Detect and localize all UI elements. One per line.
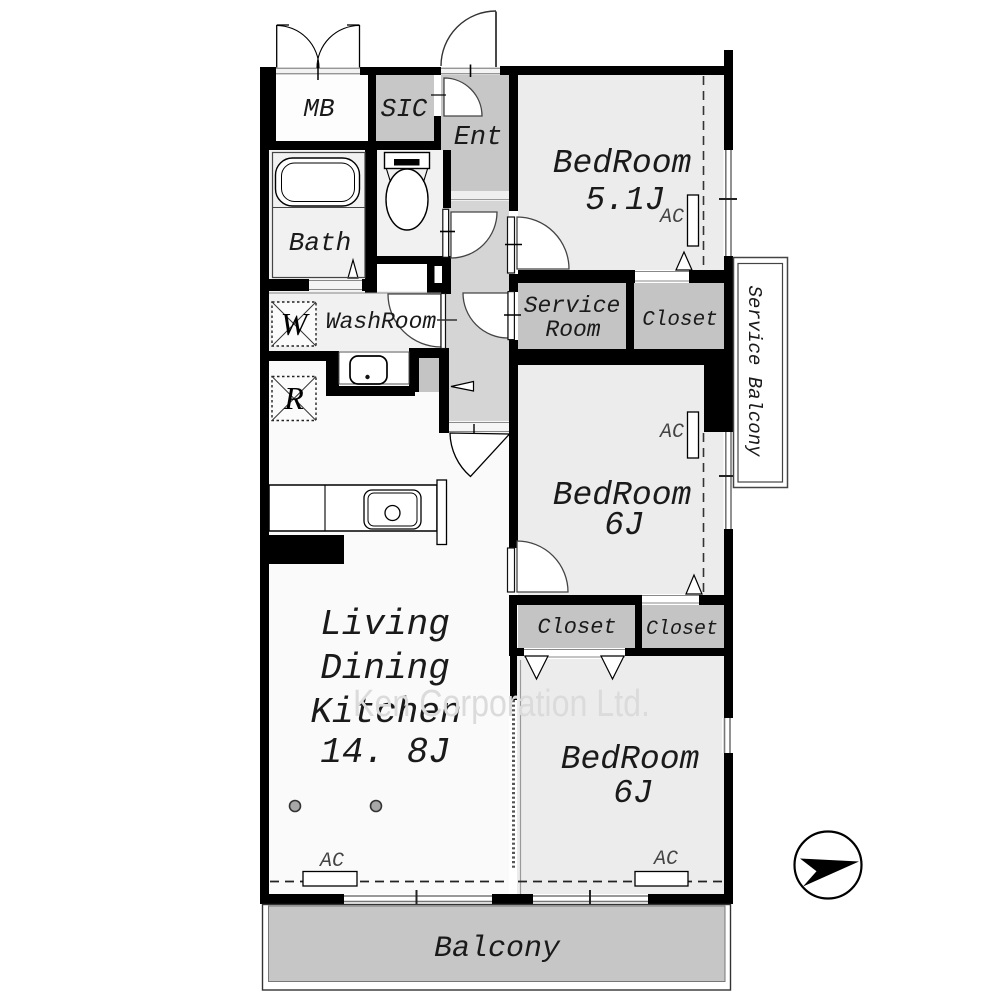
svg-text:14. 8J: 14. 8J xyxy=(320,732,450,773)
svg-text:Closet: Closet xyxy=(642,309,718,332)
svg-text:Service: Service xyxy=(524,293,621,319)
svg-text:Living: Living xyxy=(320,604,450,645)
svg-text:6J: 6J xyxy=(613,775,653,812)
svg-text:W: W xyxy=(281,306,311,342)
svg-text:WashRoom: WashRoom xyxy=(326,309,437,335)
svg-text:Service Balcony: Service Balcony xyxy=(743,285,765,457)
svg-text:Closet: Closet xyxy=(537,615,616,640)
svg-text:Balcony: Balcony xyxy=(434,932,561,966)
svg-text:AC: AC xyxy=(318,850,344,873)
svg-text:BedRoom: BedRoom xyxy=(553,145,692,182)
svg-text:AC: AC xyxy=(658,206,684,229)
svg-text:Room: Room xyxy=(545,317,600,343)
svg-text:BedRoom: BedRoom xyxy=(561,741,700,778)
svg-text:R: R xyxy=(283,380,304,416)
svg-text:Closet: Closet xyxy=(646,618,718,641)
svg-text:AC: AC xyxy=(658,421,684,444)
svg-text:Bath: Bath xyxy=(289,228,351,258)
svg-text:6J: 6J xyxy=(604,507,644,544)
svg-text:SIC: SIC xyxy=(381,94,428,124)
svg-text:5.1J: 5.1J xyxy=(585,182,664,219)
svg-text:Ken Corporation Ltd.: Ken Corporation Ltd. xyxy=(353,683,650,725)
svg-text:MB: MB xyxy=(303,94,334,124)
svg-text:Ent: Ent xyxy=(454,123,503,153)
svg-text:AC: AC xyxy=(652,848,678,871)
